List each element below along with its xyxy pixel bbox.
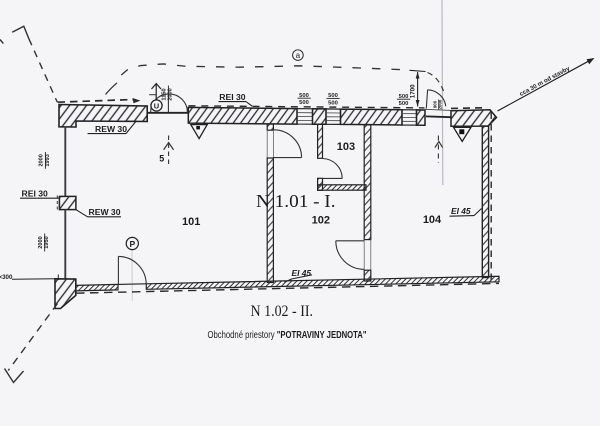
svg-text:P: P [129,239,135,249]
svg-text:2000: 2000 [39,154,45,166]
svg-text:500: 500 [328,100,338,106]
svg-text:500: 500 [399,101,409,107]
svg-text:500: 500 [299,100,309,106]
svg-text:REI 30: REI 30 [22,189,48,199]
svg-text:REI 30: REI 30 [219,92,245,102]
svg-text:N 1.02 - II.: N 1.02 - II. [251,303,314,320]
svg-text:5: 5 [159,154,164,164]
svg-text:102: 102 [312,214,330,226]
svg-text:1150: 1150 [161,88,167,100]
svg-text:EI 45: EI 45 [451,206,471,216]
svg-text:U: U [154,101,159,110]
svg-text:2000: 2000 [437,99,442,109]
svg-text:1950: 1950 [44,236,50,248]
svg-text:103: 103 [337,141,355,153]
svg-text:REW 30: REW 30 [95,124,127,134]
svg-text:2000: 2000 [168,88,174,100]
svg-text:2000: 2000 [38,236,44,248]
svg-text:101: 101 [182,216,200,228]
svg-text:104: 104 [423,214,442,226]
svg-text:×300: ×300 [0,274,13,281]
svg-text:a: a [296,51,301,60]
svg-text:REW 30: REW 30 [89,207,121,217]
svg-text:1993: 1993 [45,154,51,166]
svg-text:Obchodné priestory "POTRAVINY: Obchodné priestory "POTRAVINY JEDNOTA" [208,329,367,341]
svg-text:1700: 1700 [410,84,417,98]
svg-text:N 1.01 - I.: N 1.01 - I. [256,191,336,211]
